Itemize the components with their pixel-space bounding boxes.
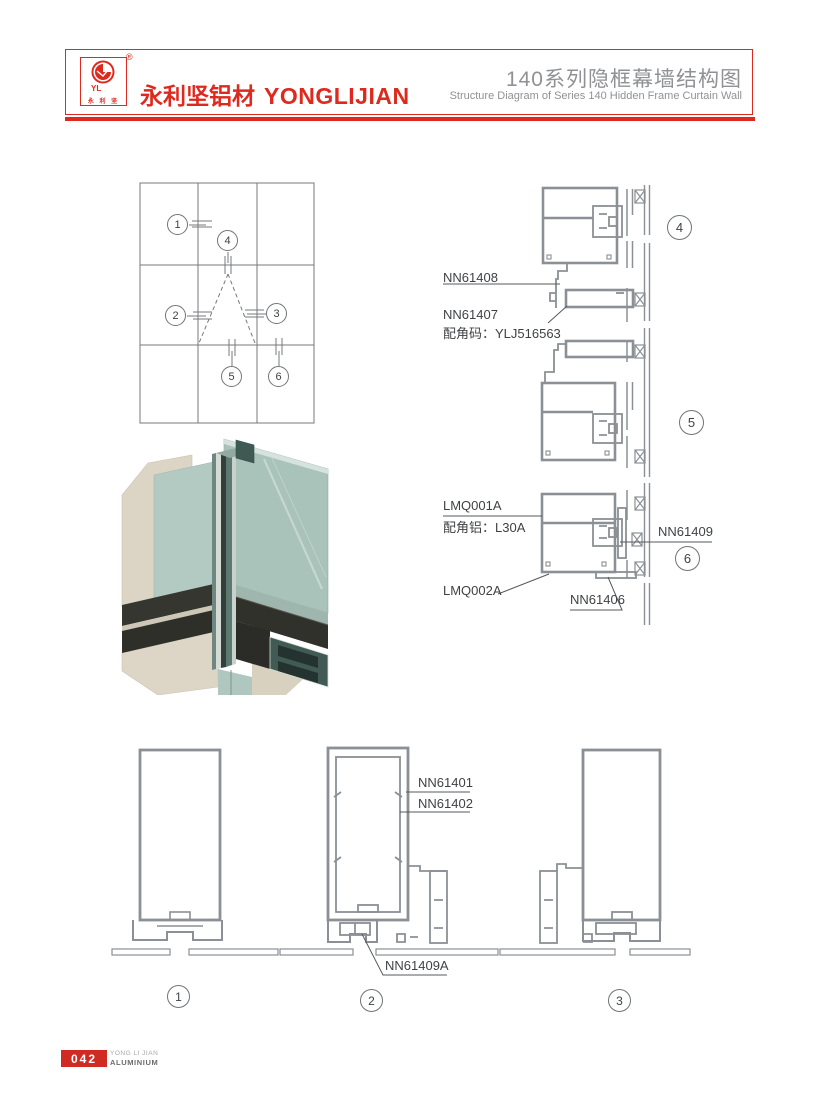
label-nn61402: NN61402 <box>418 796 473 811</box>
footer-brand-line2: ALUMINIUM <box>110 1058 158 1067</box>
section-marker-6: 6 <box>675 546 700 571</box>
label-nn61407-corner-code: 配角码：YLJ516563 <box>443 323 561 342</box>
elevation-marker-6: 6 <box>268 366 289 387</box>
elevation-marker-1: 1 <box>167 214 188 235</box>
section-marker-1: 1 <box>167 985 190 1008</box>
label-nn61406: NN61406 <box>570 592 625 607</box>
footer-brand-line1: YONG LI JIAN <box>110 1050 158 1057</box>
label-lmq002a: LMQ002A <box>443 583 502 598</box>
elevation-grid-diagram <box>140 183 314 423</box>
section-marker-4: 4 <box>667 215 692 240</box>
page-number-badge: 042 <box>61 1050 107 1067</box>
elevation-marker-5: 5 <box>221 366 242 387</box>
label-lmq001a: LMQ001A <box>443 498 502 513</box>
section-marker-3: 3 <box>608 989 631 1012</box>
label-nn61407: NN61407 <box>443 307 498 322</box>
label-nn61409: NN61409 <box>658 524 713 539</box>
label-nn61409a: NN61409A <box>385 958 449 973</box>
vertical-sections-drawing <box>443 185 712 625</box>
horizontal-sections-drawing <box>112 748 690 975</box>
section-marker-5: 5 <box>679 410 704 435</box>
elevation-marker-2: 2 <box>165 305 186 326</box>
section-marker-2: 2 <box>360 989 383 1012</box>
label-nn61408: NN61408 <box>443 270 498 285</box>
assembly-3d-render <box>118 437 346 695</box>
label-lmq001a-corner-code: 配角铝：L30A <box>443 517 525 536</box>
catalog-page: YL ® 永 利 坚 永利坚铝材YONGLIJIAN 140系列隐框幕墙结构图 … <box>0 0 817 1101</box>
label-nn61401: NN61401 <box>418 775 473 790</box>
elevation-marker-4: 4 <box>217 230 238 251</box>
elevation-marker-3: 3 <box>266 303 287 324</box>
